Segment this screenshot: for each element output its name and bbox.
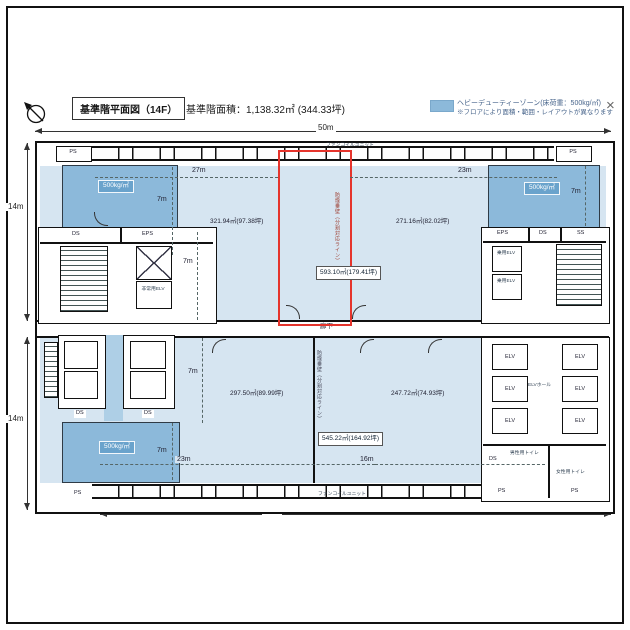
- area-lower-right: 247.72㎡(74.93坪): [391, 391, 444, 398]
- shaft-x-upper-left: [136, 246, 172, 280]
- partition-line-note-upper: 防煙垂壁（分割対応ライン）: [334, 192, 339, 300]
- dim-dash-7m-core-left: [197, 232, 198, 320]
- core-ur-divider2: [560, 227, 562, 242]
- dim-label-7m-upper-right: 7m: [571, 188, 581, 195]
- close-icon[interactable]: ×: [606, 98, 615, 113]
- area-lower-left: 297.50㎡(89.99坪): [230, 391, 283, 398]
- passenger-elevator-room-2: [492, 274, 522, 300]
- legend-line2: ※フロアにより面積・範囲・レイアウトが異なります: [457, 110, 613, 117]
- shaft-car-ll-1a: [64, 341, 98, 369]
- dim-label-7m-upper-left: 7m: [157, 196, 167, 203]
- area-upper-left: 321.94㎡(97.38坪): [210, 219, 263, 226]
- dim-dash-27m: [95, 177, 278, 178]
- ds-label-ll-1: DS: [74, 410, 86, 418]
- mens-toilet-label: 男性用トイレ: [510, 452, 539, 457]
- fan-coil-note-bottom: ファンコイルユニット: [318, 493, 366, 498]
- dim-line-14m-upper: [27, 143, 28, 321]
- elevator-4-label: ELV: [563, 345, 597, 369]
- ps-label-core-lr-1: PS: [498, 489, 505, 495]
- dim-dash-23m-upper: [350, 177, 557, 178]
- ds-label-ll-2: DS: [142, 410, 154, 418]
- ps-label-core-lr-2: PS: [571, 489, 578, 495]
- toilet-wall-v: [548, 446, 550, 498]
- fan-coil-note-top: ファンコイルユニット: [326, 144, 374, 149]
- elevator-2-label: ELV: [493, 377, 527, 401]
- heavy-duty-zone-upper-right: [488, 165, 600, 228]
- load-chip-lower-left: 500kg/㎡: [99, 441, 135, 454]
- legend-line1: ヘビーデューティーゾーン(床荷重：500kg/㎡): [457, 100, 601, 107]
- partition-line-note-lower: 防煙垂壁（分割対応ライン）: [316, 350, 321, 432]
- elevator-1: ELV: [492, 344, 528, 370]
- dim-label-14m-lower: 14m: [6, 415, 26, 423]
- elevator-6-label: ELV: [563, 409, 597, 433]
- elevator-6: ELV: [562, 408, 598, 434]
- elevator-5: ELV: [562, 376, 598, 402]
- passenger-elevator-room-1: [492, 246, 522, 272]
- toilet-wall-h: [483, 444, 606, 446]
- shaft-car-ll-2a: [130, 341, 166, 369]
- dim-label-7m-zone-lower: 7m: [157, 447, 167, 454]
- ds-label-core-ul: DS: [72, 232, 80, 238]
- dim-label-23m-lower: 23m: [175, 456, 193, 463]
- dim-dash-7m-zone-lower: [172, 423, 173, 480]
- core-ur-band-wall: [483, 241, 606, 243]
- dim-label-7m-core-left: 7m: [183, 258, 193, 265]
- passenger-elevator-label-1: 乗用ELV: [492, 252, 520, 257]
- ds-label-core-lr: DS: [489, 457, 497, 463]
- total-area-text: 基準階面積：1,138.32㎡ (344.33坪): [186, 101, 345, 116]
- eps-label-core-ur: EPS: [497, 231, 508, 237]
- dim-label-16m: 16m: [358, 456, 376, 463]
- core-ul-divider: [120, 227, 122, 243]
- mid-blue-strip: [104, 335, 123, 421]
- ps-label-top-right: PS: [556, 150, 590, 156]
- emergency-elevator-label: 非常用ELV: [136, 288, 170, 293]
- dim-line-14m-lower: [27, 337, 28, 510]
- ds-label-core-ur: DS: [539, 231, 547, 237]
- core-ur-divider1: [528, 227, 530, 242]
- load-chip-upper-right: 500kg/㎡: [524, 182, 560, 195]
- dim-label-27m: 27m: [192, 167, 206, 174]
- shaft-car-ll-2b: [130, 371, 166, 399]
- stairs-upper-left: [60, 246, 108, 312]
- eps-label-core-ul: EPS: [142, 232, 153, 238]
- area-upper-right: 271.16㎡(82.02坪): [396, 219, 449, 226]
- dim-dash-16m: [375, 464, 545, 465]
- dim-line-39m: [100, 514, 611, 515]
- area-lower-total: 545.22㎡(164.92坪): [318, 432, 383, 446]
- elevator-2: ELV: [492, 376, 528, 402]
- highlighted-unit-outline[interactable]: [278, 150, 352, 326]
- stairs-upper-right: [556, 244, 602, 306]
- load-chip-upper-left: 500kg/㎡: [98, 180, 134, 193]
- elevator-1-label: ELV: [493, 345, 527, 369]
- area-upper-total: 593.10㎡(179.41坪): [316, 266, 381, 280]
- womens-toilet-label: 女性用トイレ: [556, 471, 585, 476]
- elevator-4: ELV: [562, 344, 598, 370]
- elevator-5-label: ELV: [563, 377, 597, 401]
- ss-label-core-ur: SS: [577, 231, 584, 237]
- page-title: 基準階平面図（14F）: [72, 97, 185, 120]
- core-ul-band-wall: [40, 242, 213, 244]
- elevator-hall-label: ELVホール: [528, 384, 551, 389]
- dim-label-23m-upper: 23m: [458, 167, 472, 174]
- passenger-elevator-label-2: 乗用ELV: [492, 280, 520, 285]
- dim-dash-23m-lower: [100, 464, 375, 465]
- legend-swatch: [430, 100, 454, 112]
- shaft-car-ll-1b: [64, 371, 98, 399]
- dim-dash-7m-upper-left: [172, 167, 173, 255]
- dim-label-14m-upper: 14m: [6, 203, 26, 211]
- dim-dash-7m-upper-right: [585, 166, 586, 226]
- dim-dash-7m-lower: [202, 338, 203, 423]
- lower-division-wall: [313, 338, 315, 483]
- ps-label-bottom-left: PS: [74, 491, 81, 497]
- exterior-stair-hatch: [44, 342, 58, 398]
- elevator-3: ELV: [492, 408, 528, 434]
- ps-label-top-left: PS: [56, 150, 90, 156]
- north-compass-icon: [22, 100, 48, 126]
- dim-label-50m: 50m: [316, 124, 336, 132]
- floorplan-viewer: { "header": { "title": "基準階平面図（14F）", "a…: [0, 0, 630, 630]
- window-row-bottom: [92, 484, 526, 499]
- emergency-elevator-room: [136, 281, 172, 309]
- dim-label-7m-lower: 7m: [188, 368, 198, 375]
- elevator-3-label: ELV: [493, 409, 527, 433]
